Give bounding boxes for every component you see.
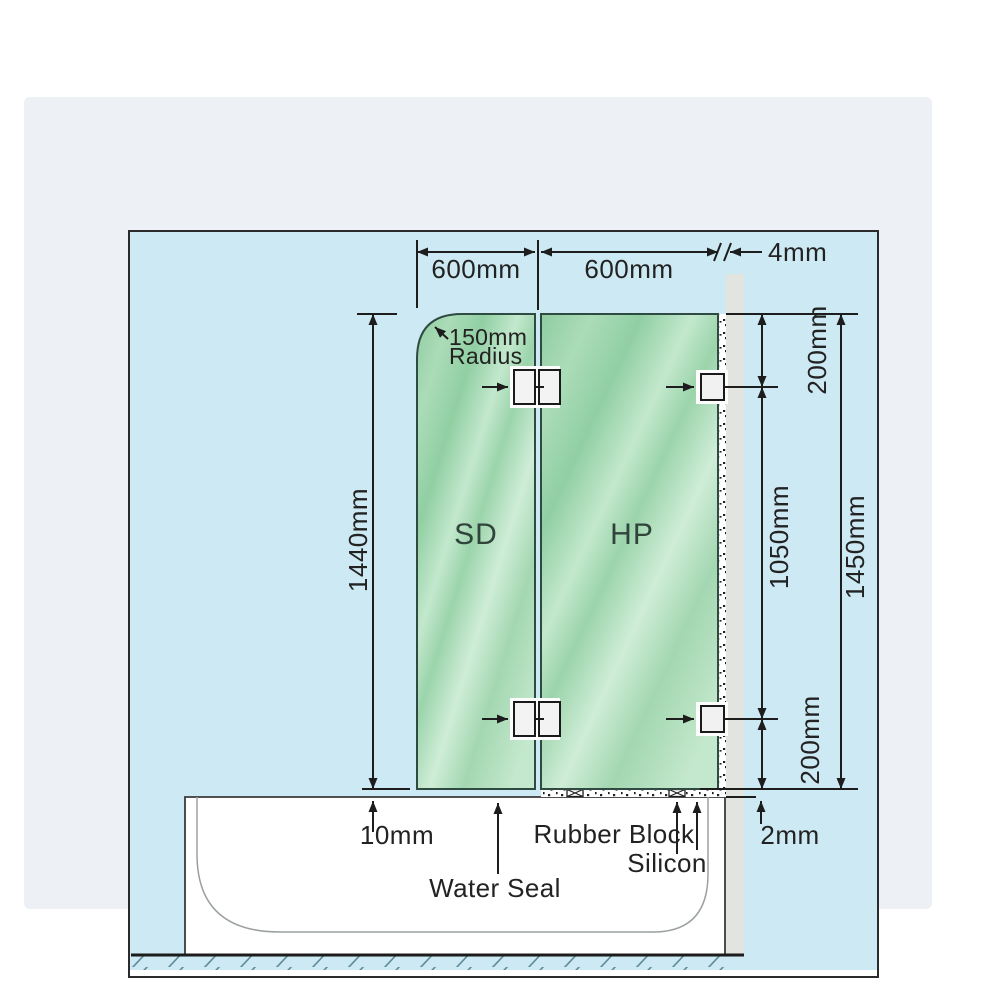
dim-label-wall-gap: 4mm	[768, 237, 827, 267]
radius-label-line2: Radius	[449, 343, 522, 369]
hinge-top	[510, 366, 560, 408]
callout-label-rubber-block: Rubber Block	[534, 819, 695, 849]
dim-label-bracket-spacing: 1050mm	[764, 485, 794, 589]
panel-label-sd: SD	[454, 518, 498, 551]
dim-label-hp-height: 1450mm	[840, 495, 870, 599]
dim-label-silicon-gap: 2mm	[760, 820, 819, 850]
wall-bracket-top	[696, 370, 728, 404]
dim-label-sd-width: 600mm	[431, 254, 520, 284]
dim-label-hp-width: 600mm	[584, 254, 673, 284]
callout-label-silicon: Silicon	[627, 848, 706, 878]
floor-hatch	[131, 955, 744, 970]
wall	[726, 274, 744, 955]
glass-panel-hp	[541, 314, 718, 789]
installation-diagram: SD HP	[128, 230, 879, 978]
panel-label-hp: HP	[610, 518, 654, 551]
floor-bottom-strip	[130, 970, 877, 976]
dim-label-door-gap: 10mm	[360, 820, 434, 850]
callout-corner-radius: 150mm Radius	[435, 324, 527, 369]
dim-label-top-offset: 200mm	[802, 305, 832, 394]
rubber-block-marker	[567, 790, 583, 797]
dim-label-bottom-offset: 200mm	[795, 695, 825, 784]
wall-bracket-bottom	[696, 702, 728, 736]
dim-label-sd-height: 1440mm	[343, 488, 373, 592]
rubber-block-marker	[669, 790, 685, 797]
hinge-bottom	[510, 698, 560, 740]
diagram-canvas: SD HP	[130, 232, 877, 976]
image-frame: SD HP	[24, 97, 932, 909]
callout-label-water-seal: Water Seal	[429, 873, 561, 903]
